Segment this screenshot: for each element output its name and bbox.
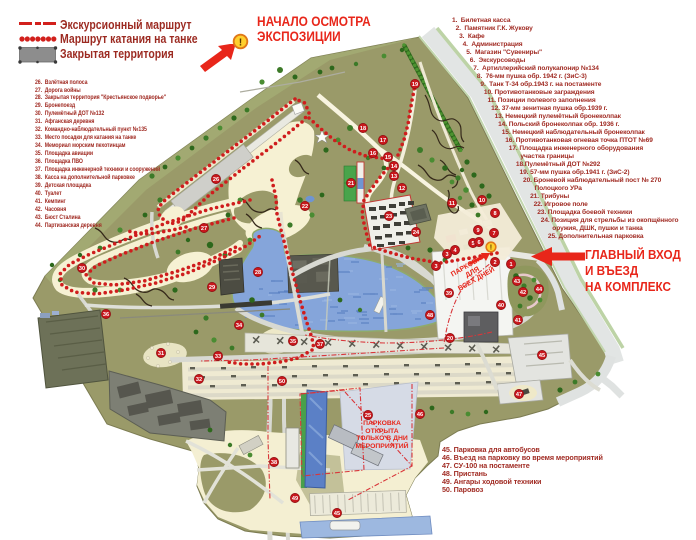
svg-text:16: 16 xyxy=(370,151,376,157)
svg-text:3: 3 xyxy=(445,252,448,258)
svg-text:22: 22 xyxy=(302,204,308,210)
svg-text:25: 25 xyxy=(365,413,371,419)
svg-text:23: 23 xyxy=(386,214,392,220)
svg-text:17: 17 xyxy=(380,138,386,144)
svg-text:15: 15 xyxy=(385,155,391,161)
svg-text:41: 41 xyxy=(515,318,521,324)
svg-text:27: 27 xyxy=(201,226,207,232)
svg-text:42: 42 xyxy=(520,290,526,296)
svg-text:6: 6 xyxy=(477,240,480,246)
svg-text:24: 24 xyxy=(413,230,420,236)
svg-text:10: 10 xyxy=(479,198,485,204)
svg-text:29: 29 xyxy=(209,285,215,291)
svg-text:50: 50 xyxy=(279,379,285,385)
svg-text:9: 9 xyxy=(476,228,479,234)
svg-text:36: 36 xyxy=(103,312,109,318)
svg-text:38: 38 xyxy=(271,460,277,466)
svg-text:49: 49 xyxy=(292,496,298,502)
svg-text:40: 40 xyxy=(498,303,504,309)
svg-text:47: 47 xyxy=(516,392,522,398)
svg-text:18: 18 xyxy=(360,126,366,132)
svg-text:37: 37 xyxy=(317,342,323,348)
svg-text:33: 33 xyxy=(215,354,221,360)
svg-text:!: ! xyxy=(239,37,243,49)
svg-text:3: 3 xyxy=(434,264,437,270)
svg-text:1: 1 xyxy=(509,262,512,268)
svg-text:8: 8 xyxy=(493,211,496,217)
svg-text:13: 13 xyxy=(391,174,397,180)
svg-text:34: 34 xyxy=(236,323,243,329)
svg-text:31: 31 xyxy=(158,351,164,357)
svg-text:28: 28 xyxy=(255,270,261,276)
svg-text:26: 26 xyxy=(213,177,219,183)
svg-text:48: 48 xyxy=(427,313,433,319)
svg-text:7: 7 xyxy=(492,231,495,237)
svg-text:30: 30 xyxy=(79,266,85,272)
svg-text:19: 19 xyxy=(412,82,418,88)
svg-text:44: 44 xyxy=(536,287,543,293)
svg-text:14: 14 xyxy=(391,164,398,170)
svg-text:35: 35 xyxy=(290,339,296,345)
svg-text:46: 46 xyxy=(417,412,423,418)
svg-text:20: 20 xyxy=(447,336,453,342)
svg-text:11: 11 xyxy=(449,201,455,207)
svg-text:45: 45 xyxy=(334,511,340,517)
svg-text:45: 45 xyxy=(539,353,545,359)
svg-text:12: 12 xyxy=(399,186,405,192)
svg-text:43: 43 xyxy=(514,279,520,285)
svg-text:21: 21 xyxy=(348,181,354,187)
svg-text:32: 32 xyxy=(196,377,202,383)
